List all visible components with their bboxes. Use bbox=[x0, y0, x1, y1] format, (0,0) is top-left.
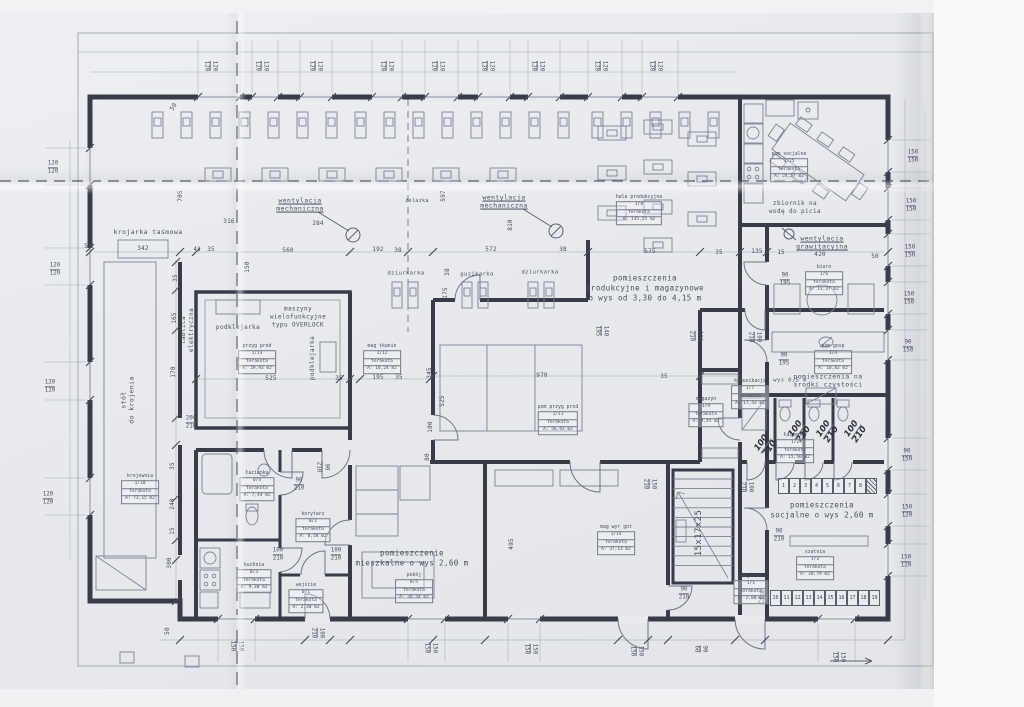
dim-top: 120 bbox=[43, 491, 53, 498]
room-floor-material: terakota bbox=[734, 588, 767, 596]
dim-label: 100 bbox=[427, 421, 435, 432]
room-tag-box: 0/4terakotaA: 7,44 m2 bbox=[239, 477, 274, 501]
room-tag-box: 1/4terakotaA: 10,82 m2 bbox=[814, 350, 852, 374]
dim-pair: 150210 bbox=[641, 479, 656, 489]
dim-pair: 9060 bbox=[692, 646, 707, 653]
dim-label: 195 bbox=[372, 374, 383, 382]
room-floor-material: terakota bbox=[364, 358, 400, 366]
dim-bottom: 150 bbox=[228, 641, 236, 651]
dim-pair: 100210 bbox=[738, 482, 753, 492]
dim-top: 100 bbox=[331, 547, 341, 554]
dim-pair: 200210 bbox=[186, 415, 196, 430]
dim-top: 120 bbox=[211, 61, 218, 71]
dim-label: 525 bbox=[265, 375, 276, 383]
dim-bottom: 150 bbox=[522, 644, 530, 654]
dim-label: 35 bbox=[660, 373, 668, 381]
dim-pair: 150120 bbox=[902, 504, 912, 519]
dim-bottom: 195 bbox=[593, 326, 601, 336]
dim-pair: 120120 bbox=[253, 61, 268, 71]
room-tag: szatnia1/3terakotaA: 20,79 m2 bbox=[796, 550, 834, 580]
dim-top: 150 bbox=[237, 641, 244, 651]
dim-top: 90 bbox=[323, 464, 330, 471]
locker-row: 10111213141516171819 bbox=[770, 590, 880, 606]
dim-pair: 90150 bbox=[902, 448, 912, 463]
locker-cell: 16 bbox=[836, 590, 847, 606]
dim-bottom: 120 bbox=[902, 512, 912, 520]
dim-top: 120 bbox=[538, 61, 545, 71]
dim-bottom: 60 bbox=[692, 646, 700, 653]
dim-bottom: 210 bbox=[309, 628, 317, 638]
room-name: pokój bbox=[395, 573, 433, 578]
room-name: mag tkanin bbox=[363, 344, 401, 349]
room-area: A: 37,13 m2 bbox=[598, 546, 634, 554]
dim-bottom: 210 bbox=[687, 331, 695, 341]
dim-bottom: 210 bbox=[641, 479, 649, 489]
plan-label: wentylacja mechaniczna bbox=[480, 194, 527, 211]
room-area: A: 10,82 m2 bbox=[815, 365, 851, 373]
dim-pair: 120120 bbox=[48, 160, 58, 175]
room-floor-material: terakota bbox=[289, 597, 322, 605]
dim-bottom: 120 bbox=[592, 61, 600, 71]
dim-pair: 100210 bbox=[331, 547, 341, 562]
dim-pair: 120120 bbox=[43, 491, 53, 506]
dim-label: 240 bbox=[169, 498, 177, 509]
dim-label: 170 bbox=[170, 366, 178, 377]
dim-label: 15 bbox=[777, 249, 785, 257]
door-dim-handwritten: 100210 bbox=[843, 419, 869, 444]
dim-top: 150 bbox=[904, 291, 914, 298]
dim-bottom: 210 bbox=[746, 332, 754, 342]
room-name: krojownia bbox=[121, 474, 159, 479]
dim-bottom: 120 bbox=[307, 61, 315, 71]
plan-label: zbiornik na wodę do picia bbox=[769, 200, 821, 216]
dim-top: 90 bbox=[781, 352, 788, 359]
room-tag: łazienka0/4terakotaA: 7,44 m2 bbox=[239, 471, 274, 501]
dim-pair: 150150 bbox=[908, 149, 918, 164]
room-tag: pom socjalne1/15terakotaA: 24,57 m2 bbox=[770, 152, 808, 182]
dim-bottom: 150 bbox=[902, 456, 912, 464]
dim-pair: 90210 bbox=[314, 462, 329, 472]
plan-label: pomieszczenie mieszkalne o wys 2,60 m bbox=[355, 548, 468, 568]
room-name: kuchnia bbox=[236, 563, 271, 568]
dim-top: 150 bbox=[650, 479, 657, 489]
dim-label: 50 bbox=[164, 627, 172, 635]
plan-label: podklejarka bbox=[309, 336, 317, 380]
plan-label: stół do krojenia bbox=[120, 376, 137, 423]
dim-bottom: 210 bbox=[738, 482, 746, 492]
dim-top: 90 bbox=[905, 339, 912, 346]
room-tag-box: 1/12terakotaA: 18,24 m2 bbox=[363, 350, 401, 374]
room-name: biuro bbox=[805, 265, 843, 270]
locker-cell: 5 bbox=[822, 478, 833, 494]
plan-label: 15x17x25 bbox=[694, 510, 706, 557]
locker-cell: 1 bbox=[778, 478, 789, 494]
plan-label: żelazka bbox=[405, 198, 429, 205]
dim-pair: 150150 bbox=[830, 652, 845, 662]
locker-cell: 19 bbox=[869, 590, 880, 606]
room-area: A: 13,37 m2 bbox=[806, 286, 842, 294]
room-name: pom gosp bbox=[814, 344, 852, 349]
dim-pair: 120120 bbox=[378, 61, 393, 71]
locker-cell: 12 bbox=[792, 590, 803, 606]
dim-label: 560 bbox=[282, 247, 293, 255]
dim-top: 120 bbox=[45, 379, 55, 386]
dim-label: 420 bbox=[814, 251, 825, 259]
dim-top: 150 bbox=[431, 643, 438, 653]
door-dim-handwritten: 100210 bbox=[815, 419, 841, 444]
room-tag: hala produkcyjna1/8terakotaA: 135,55 m2 bbox=[616, 195, 662, 225]
dim-top: 100 bbox=[755, 332, 762, 342]
room-area: A: 20,79 m2 bbox=[797, 571, 833, 579]
dim-bottom: 210 bbox=[331, 555, 341, 563]
plan-label: wys 0,5 m bbox=[773, 377, 806, 384]
dim-bottom: 120 bbox=[45, 387, 55, 395]
dim-label: 35 bbox=[169, 462, 177, 470]
room-tag-box: 1/7terakotaA: 17,43 m2 bbox=[731, 385, 769, 409]
room-tag-box: 1/3terakotaA: 20,79 m2 bbox=[796, 556, 834, 580]
plan-label: krojarka taśmowa bbox=[113, 228, 182, 236]
room-tag-box: 0/1terakotaA: 2,30 m2 bbox=[288, 589, 323, 613]
room-tag-box: 1/8terakotaA: 135,55 m2 bbox=[616, 201, 662, 225]
dim-bottom: 120 bbox=[429, 61, 437, 71]
dim-pair: 150150 bbox=[628, 646, 643, 656]
dim-bottom: 120 bbox=[202, 61, 210, 71]
dim-bottom: 150 bbox=[830, 652, 838, 662]
locker-cell: 6 bbox=[833, 478, 844, 494]
plan-label: tablica elektryczna bbox=[180, 308, 196, 352]
room-area: A: 18,24 m2 bbox=[364, 365, 400, 373]
dim-bottom: 150 bbox=[904, 299, 914, 307]
annotation-overlay: wentylacja mechanicznawentylacja mechani… bbox=[0, 0, 1024, 707]
dim-label: 43 bbox=[193, 246, 201, 254]
dim-top: 100 bbox=[747, 482, 754, 492]
dim-top: 90 bbox=[681, 586, 688, 593]
dim-top: 90 bbox=[296, 477, 303, 484]
dim-pair: 120120 bbox=[592, 61, 607, 71]
room-area: A: 8,50 m2 bbox=[296, 533, 329, 541]
dim-label: 970 bbox=[536, 372, 547, 380]
dim-pair: 120120 bbox=[647, 61, 662, 71]
room-tag: komunikacja1/7terakotaA: 17,43 m2 bbox=[731, 379, 769, 409]
dim-pair: 150150 bbox=[422, 643, 437, 653]
dim-pair: 150150 bbox=[522, 644, 537, 654]
room-tag: przyg prod1/13terakotaA: 29,93 m2 bbox=[238, 344, 276, 374]
room-tag: korytarz0/2terakotaA: 8,50 m2 bbox=[295, 512, 330, 542]
dim-label: 175 bbox=[442, 287, 450, 298]
room-area: A: 73,15 m2 bbox=[122, 495, 158, 503]
dim-bottom: 120 bbox=[479, 61, 487, 71]
dim-pair: 120120 bbox=[50, 262, 60, 277]
dim-label: 705 bbox=[177, 190, 185, 201]
dim-label: 300 bbox=[166, 557, 174, 568]
room-tag: magazyn1/9terakotaA: 9,45 m2 bbox=[688, 397, 723, 427]
room-tag: pokój0/5terakotaA: 20,54 m2 bbox=[395, 573, 433, 603]
room-tag: krojownia1/10terakotaA: 73,15 m2 bbox=[121, 474, 159, 504]
dim-label: 38 bbox=[559, 246, 567, 254]
room-tag: mag wyr got1/14terakotaA: 37,13 m2 bbox=[597, 525, 635, 555]
room-name: korytarz bbox=[295, 512, 330, 517]
dim-bottom: 210 bbox=[314, 462, 322, 472]
dim-pair: 150150 bbox=[228, 641, 243, 651]
room-tag-box: 1/14terakotaA: 37,13 m2 bbox=[597, 531, 635, 555]
dim-top: 120 bbox=[316, 61, 323, 71]
dim-top: 150 bbox=[905, 244, 915, 251]
room-name: pom socjalne bbox=[770, 152, 808, 157]
dim-top: 120 bbox=[438, 61, 445, 71]
dim-pair: 120120 bbox=[202, 61, 217, 71]
plan-label: podklejarka bbox=[216, 324, 260, 332]
dim-pair: 120120 bbox=[429, 61, 444, 71]
dim-label: 38 bbox=[394, 247, 402, 255]
scanned-floor-plan: wentylacja mechanicznawentylacja mechani… bbox=[0, 0, 1024, 707]
plan-label: dziurkarka bbox=[521, 269, 558, 276]
dim-bottom: 150 bbox=[628, 646, 636, 656]
dim-bottom: 210 bbox=[294, 485, 304, 493]
dim-bottom: 120 bbox=[50, 270, 60, 278]
locker-cell-hatched bbox=[866, 478, 877, 494]
dim-label: 150 bbox=[244, 261, 252, 272]
room-floor-material: terakota bbox=[797, 564, 833, 572]
locker-cell: 3 bbox=[800, 478, 811, 494]
dim-top: 120 bbox=[48, 160, 58, 167]
room-tag-box: 1/11terakotaA: 56,93 m2 bbox=[538, 411, 578, 435]
room-floor-material: terakota bbox=[396, 587, 432, 595]
room-tag: wejście1/1terakotaA: 2,80 m2 bbox=[733, 574, 768, 604]
dim-top: 90 bbox=[776, 528, 783, 535]
dim-top: 90 bbox=[904, 448, 911, 455]
locker-cell: 7 bbox=[844, 478, 855, 494]
plan-label: wentylacja grawitacyjna bbox=[796, 235, 848, 252]
room-tag: pom gosp1/4terakotaA: 10,82 m2 bbox=[814, 344, 852, 374]
dim-top: 150 bbox=[906, 198, 916, 205]
dim-pair: 150150 bbox=[905, 244, 915, 259]
dim-label: 35 bbox=[715, 249, 723, 257]
room-tag: łazienka1/2terakotaA: 15,50 m2 bbox=[776, 433, 814, 463]
dim-label: 572 bbox=[485, 246, 496, 254]
dim-top: 120 bbox=[387, 61, 394, 71]
dim-pair: 150120 bbox=[901, 554, 911, 569]
locker-cell: 8 bbox=[855, 478, 866, 494]
room-floor-material: terakota bbox=[240, 485, 273, 493]
room-name: magazyn bbox=[688, 397, 723, 402]
locker-row: 12345678 bbox=[778, 478, 877, 494]
dim-pair: 90210 bbox=[294, 477, 304, 492]
dim-label: 575 bbox=[644, 248, 655, 256]
room-floor-material: terakota bbox=[806, 279, 842, 287]
dim-pair: 100210 bbox=[687, 331, 702, 341]
dim-bottom: 120 bbox=[48, 168, 58, 176]
dim-pair: 90150 bbox=[903, 339, 913, 354]
dim-label: 525 bbox=[439, 395, 447, 406]
dim-pair: 120120 bbox=[529, 61, 544, 71]
dim-top: 90 bbox=[782, 272, 789, 279]
dim-bottom: 150 bbox=[422, 643, 430, 653]
dim-label: 80 bbox=[424, 453, 432, 461]
dim-top: 120 bbox=[50, 262, 60, 269]
dim-top: 100 bbox=[273, 547, 283, 554]
dim-pair: 90210 bbox=[679, 586, 689, 601]
room-tag-box: 1/13terakotaA: 29,93 m2 bbox=[238, 350, 276, 374]
dim-bottom: 150 bbox=[906, 206, 916, 214]
room-floor-material: terakota bbox=[598, 539, 634, 547]
dim-label: 50 bbox=[169, 102, 180, 113]
room-area: A: 29,93 m2 bbox=[239, 365, 275, 373]
dim-label: 316 bbox=[223, 218, 234, 226]
room-name: przyg prod bbox=[238, 344, 276, 349]
room-area: A: 56,93 m2 bbox=[539, 426, 577, 434]
room-area: A: 17,43 m2 bbox=[732, 400, 768, 408]
dim-pair: 100210 bbox=[273, 547, 283, 562]
dim-bottom: 150 bbox=[905, 252, 915, 260]
dim-bottom: 210 bbox=[679, 594, 689, 602]
dim-pair: 120120 bbox=[307, 61, 322, 71]
room-floor-material: terakota bbox=[771, 166, 807, 174]
plan-label: pomieszczenia socjalne o wys 2,60 m bbox=[770, 500, 873, 520]
dim-pair: 90195 bbox=[779, 352, 789, 367]
room-floor-material: terakota bbox=[296, 526, 329, 534]
locker-cell: 14 bbox=[814, 590, 825, 606]
dim-bottom: 120 bbox=[901, 562, 911, 570]
dim-label: 597 bbox=[440, 190, 448, 201]
dim-bottom: 210 bbox=[186, 423, 196, 431]
room-floor-material: terakota bbox=[689, 411, 722, 419]
dim-label: 284 bbox=[312, 220, 323, 228]
plan-label: wentylacja mechaniczna bbox=[276, 197, 323, 214]
dim-top: 140 bbox=[602, 326, 609, 336]
locker-cell: 2 bbox=[789, 478, 800, 494]
room-area: A: 24,57 m2 bbox=[771, 173, 807, 181]
dim-top: 120 bbox=[488, 61, 495, 71]
dim-label: 345 bbox=[426, 367, 434, 378]
plan-label: guzikarka bbox=[460, 271, 493, 278]
dim-pair: 100210 bbox=[746, 332, 761, 342]
plan-label: pomieszczenia produkcyjne i magazynowe o… bbox=[586, 273, 704, 302]
dim-bottom: 120 bbox=[529, 61, 537, 71]
room-floor-material: terakota bbox=[617, 209, 661, 217]
room-tag-box: 1/6terakotaA: 13,37 m2 bbox=[805, 271, 843, 295]
room-area: A: 15,50 m2 bbox=[777, 454, 813, 462]
dim-label: 165 bbox=[171, 312, 179, 323]
dim-top: 150 bbox=[839, 652, 846, 662]
dim-pair: 140195 bbox=[593, 326, 608, 336]
dim-bottom: 150 bbox=[903, 347, 913, 355]
room-name: łazienka bbox=[776, 433, 814, 438]
dim-top: 120 bbox=[262, 61, 269, 71]
room-floor-material: terakota bbox=[122, 488, 158, 496]
room-floor-material: terakota bbox=[777, 447, 813, 455]
dim-pair: 150150 bbox=[906, 198, 916, 213]
dim-top: 100 bbox=[696, 331, 703, 341]
locker-cell: 15 bbox=[825, 590, 836, 606]
room-tag-box: 1/15terakotaA: 24,57 m2 bbox=[770, 158, 808, 182]
room-area: A: 2,30 m2 bbox=[289, 604, 322, 612]
dim-pair: 120120 bbox=[45, 379, 55, 394]
dim-label: 38 bbox=[444, 268, 452, 276]
dim-label: 15 bbox=[169, 527, 177, 535]
dim-pair: 120120 bbox=[479, 61, 494, 71]
dim-top: 120 bbox=[601, 61, 608, 71]
dim-pair: 90195 bbox=[780, 272, 790, 287]
room-area: A: 20,54 m2 bbox=[396, 594, 432, 602]
room-tag-box: 1/1terakotaA: 2,80 m2 bbox=[733, 580, 768, 604]
room-tag: biuro1/6terakotaA: 13,37 m2 bbox=[805, 265, 843, 295]
room-area: A: 9,30 m2 bbox=[237, 584, 270, 592]
room-floor-material: terakota bbox=[539, 419, 577, 427]
door-dim-handwritten: 100210 bbox=[753, 433, 779, 458]
dim-top: 200 bbox=[186, 415, 196, 422]
dim-bottom: 210 bbox=[774, 536, 784, 544]
dim-top: 90 bbox=[701, 646, 708, 653]
room-name: hala produkcyjna bbox=[616, 195, 662, 200]
room-area: A: 9,45 m2 bbox=[689, 418, 722, 426]
dim-bottom: 195 bbox=[780, 280, 790, 288]
locker-cell: 17 bbox=[847, 590, 858, 606]
dim-label: 135 bbox=[751, 248, 762, 256]
room-floor-material: terakota bbox=[237, 577, 270, 585]
dim-top: 150 bbox=[637, 646, 644, 656]
room-area: A: 2,80 m2 bbox=[734, 595, 767, 603]
room-tag: pom przyg prod1/11terakotaA: 56,93 m2 bbox=[538, 405, 578, 435]
room-name: szatnia bbox=[796, 550, 834, 555]
dim-label: 35 bbox=[335, 375, 343, 383]
locker-cell: 4 bbox=[811, 478, 822, 494]
dim-label: 810 bbox=[507, 219, 515, 230]
room-area: A: 135,55 m2 bbox=[617, 216, 661, 224]
plan-label: maszyny wielofunkcyjne typu OVERLOCK bbox=[270, 305, 326, 328]
dim-label: 35 bbox=[207, 246, 215, 254]
dim-top: 150 bbox=[902, 504, 912, 511]
locker-cell: 13 bbox=[803, 590, 814, 606]
room-name: mag wyr got bbox=[597, 525, 635, 530]
dim-bottom: 120 bbox=[378, 61, 386, 71]
dim-bottom: 120 bbox=[647, 61, 655, 71]
room-name: komunikacja bbox=[731, 379, 769, 384]
room-tag-box: 0/3terakotaA: 9,30 m2 bbox=[236, 569, 271, 593]
plan-label: dziurkarka bbox=[387, 270, 424, 277]
locker-cell: 11 bbox=[781, 590, 792, 606]
room-floor-material: terakota bbox=[815, 358, 851, 366]
room-name: łazienka bbox=[239, 471, 274, 476]
room-tag-box: 1/9terakotaA: 9,45 m2 bbox=[688, 403, 723, 427]
dim-top: 150 bbox=[531, 644, 538, 654]
room-tag-box: 0/2terakotaA: 8,50 m2 bbox=[295, 518, 330, 542]
room-name: wejście bbox=[288, 583, 323, 588]
dim-bottom: 120 bbox=[253, 61, 261, 71]
dim-top: 120 bbox=[656, 61, 663, 71]
room-name: wejście bbox=[733, 574, 768, 579]
dim-label: 35 bbox=[395, 374, 403, 382]
room-tag-box: 0/5terakotaA: 20,54 m2 bbox=[395, 579, 433, 603]
dim-bottom: 195 bbox=[779, 360, 789, 368]
dim-top: 100 bbox=[318, 628, 325, 638]
room-floor-material: terakota bbox=[732, 393, 768, 401]
room-tag-box: 1/10terakotaA: 73,15 m2 bbox=[121, 480, 159, 504]
room-tag: mag tkanin1/12terakotaA: 18,24 m2 bbox=[363, 344, 401, 374]
dim-pair: 90210 bbox=[774, 528, 784, 543]
dim-top: 150 bbox=[908, 149, 918, 156]
dim-label: 50 bbox=[871, 253, 879, 261]
dim-label: 192 bbox=[372, 246, 383, 254]
dim-pair: 150150 bbox=[904, 291, 914, 306]
room-name: pom przyg prod bbox=[538, 405, 578, 410]
dim-label: 342 bbox=[137, 245, 148, 253]
room-tag-box: 1/2terakotaA: 15,50 m2 bbox=[776, 439, 814, 463]
dim-pair: 100210 bbox=[309, 628, 324, 638]
room-tag: kuchnia0/3terakotaA: 9,30 m2 bbox=[236, 563, 271, 593]
dim-label: 495 bbox=[508, 538, 516, 549]
room-tag: wejście0/1terakotaA: 2,30 m2 bbox=[288, 583, 323, 613]
room-floor-material: terakota bbox=[239, 358, 275, 366]
